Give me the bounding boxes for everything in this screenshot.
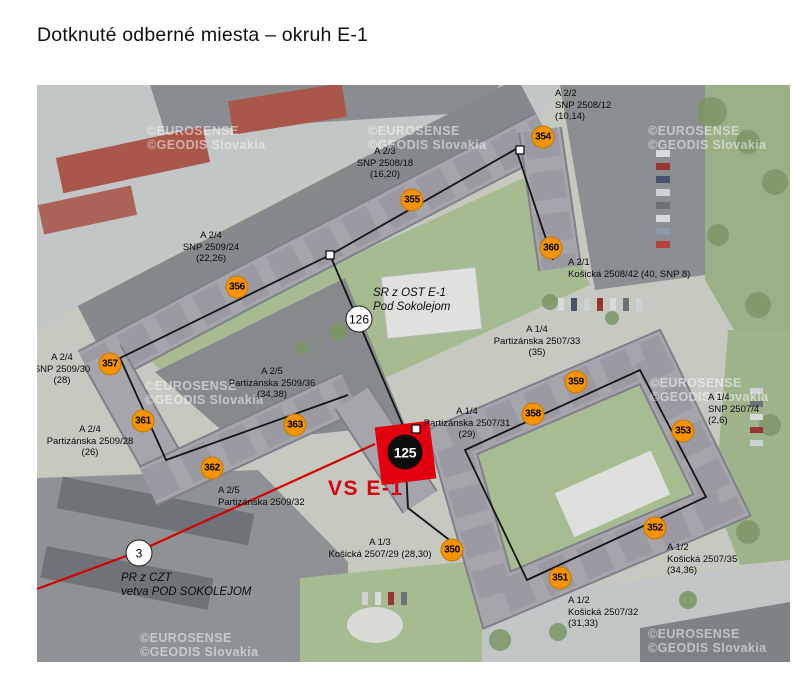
page-title: Dotknuté odberné miesta – okruh E-1: [37, 24, 368, 47]
vs-e1-label: VS E-1: [328, 477, 404, 501]
vs-e1-substation-block: [375, 421, 437, 485]
aerial-map-graphic: [37, 85, 790, 662]
map: ©EUROSENSE ©GEODIS Slovakia©EUROSENSE ©G…: [37, 85, 790, 662]
document-page: Dotknuté odberné miesta – okruh E-1: [0, 0, 794, 700]
